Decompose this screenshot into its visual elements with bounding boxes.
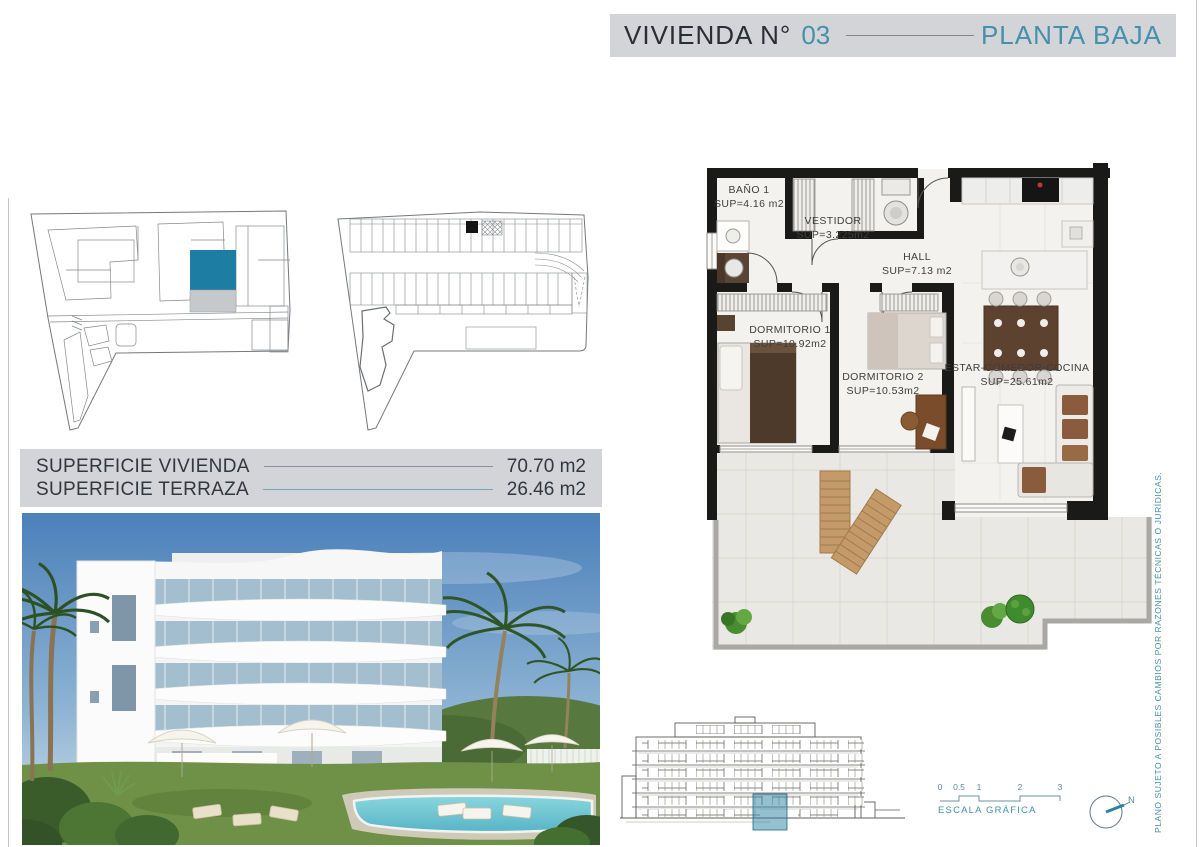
scale-tick: 3 — [1058, 782, 1063, 792]
leader-line — [263, 489, 493, 490]
scale-tick: 0.5 — [953, 782, 965, 792]
highlighted-unit-elevation — [753, 794, 787, 830]
surface-value: 26.46 m2 — [507, 479, 586, 501]
building-photo — [22, 513, 600, 845]
surface-label: SUPERFICIE TERRAZA — [36, 479, 249, 501]
header-bar: VIVIENDA N° 03 PLANTA BAJA — [610, 14, 1176, 57]
site-plan-location-drawing — [18, 200, 303, 440]
header-divider-line — [846, 35, 974, 36]
north-label: N — [1128, 795, 1135, 806]
basement-plan-drawing — [330, 207, 615, 442]
elevation-drawing — [620, 698, 905, 847]
scale-bar: 0 0.5 1 2 3 ESCALA GRÁFICA — [938, 782, 1088, 824]
scale-tick: 0 — [938, 782, 943, 792]
unit-number: 03 — [801, 20, 830, 51]
sheet-border-right — [1196, 0, 1197, 847]
scale-tick: 1 — [977, 782, 982, 792]
floor-label: PLANTA BAJA — [981, 20, 1162, 51]
surface-row: SUPERFICIE VIVIENDA 70.70 m2 — [36, 455, 586, 478]
sheet-border-left — [8, 198, 9, 847]
disclaimer-text: PLANO SUJETO A POSIBLES CAMBIOS POR RAZO… — [1153, 472, 1163, 833]
leader-line — [264, 466, 493, 467]
room-label-hall: HALL SUP=7.13 m2 — [882, 251, 952, 278]
north-arrow-icon — [1080, 785, 1144, 837]
plan-sheet: VIVIENDA N° 03 PLANTA BAJA — [0, 0, 1200, 847]
surface-table: SUPERFICIE VIVIENDA 70.70 m2 SUPERFICIE … — [20, 449, 602, 507]
north-arrow: N — [1080, 785, 1144, 837]
floor-plan-drawing — [700, 163, 1165, 685]
floor-plan: BAÑO 1 SUP=4.16 m2 VESTIDOR SUP=3.225m2 … — [700, 163, 1165, 685]
page-title: VIVIENDA N° — [624, 20, 791, 51]
scale-label: ESCALA GRÁFICA — [938, 805, 1037, 816]
room-label-bano: BAÑO 1 SUP=4.16 m2 — [714, 184, 784, 211]
room-label-vestidor: VESTIDOR SUP=3.225m2 — [797, 215, 870, 242]
unit-terrace-footprint — [190, 290, 236, 312]
scale-bar-graphic — [938, 793, 1068, 803]
surface-value: 70.70 m2 — [507, 456, 586, 478]
pool-outline — [360, 307, 394, 391]
surface-row: SUPERFICIE TERRAZA 26.46 m2 — [36, 478, 586, 501]
highlighted-unit-footprint — [190, 250, 236, 290]
surface-label: SUPERFICIE VIVIENDA — [36, 456, 250, 478]
room-label-dormitorio-1: DORMITORIO 1 SUP=10.92m2 — [749, 324, 831, 351]
room-label-estar-comedor-cocina: ESTAR-COMEDOR-COCINA SUP=25.61m2 — [945, 362, 1090, 389]
room-label-dormitorio-2: DORMITORIO 2 SUP=10.53m2 — [842, 371, 924, 398]
scale-tick: 2 — [1018, 782, 1023, 792]
